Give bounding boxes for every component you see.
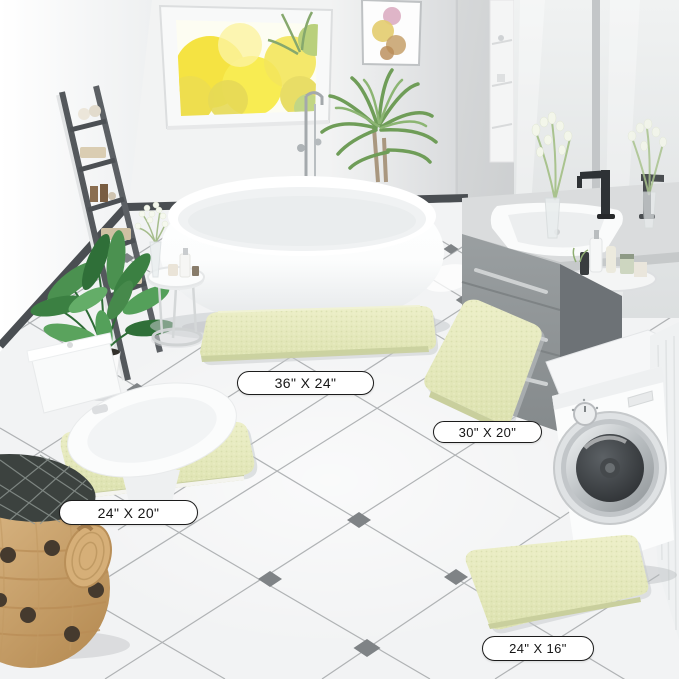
washer-door bbox=[554, 412, 666, 524]
rug-size-label-24x20: 24" X 20" bbox=[59, 500, 198, 525]
rug-size-label-30x20: 30" X 20" bbox=[433, 421, 542, 443]
wall-shelf bbox=[490, 0, 514, 162]
bath-rug-large bbox=[200, 306, 438, 365]
bathroom-scene bbox=[0, 0, 679, 679]
bathroom-product-photo: 36" X 24" 30" X 20" 24" X 20" 24" X 16" bbox=[0, 0, 679, 679]
rug-size-label-24x16: 24" X 16" bbox=[482, 636, 594, 661]
wall-art-frame bbox=[362, 0, 421, 65]
rug-size-label-36x24: 36" X 24" bbox=[237, 371, 374, 395]
